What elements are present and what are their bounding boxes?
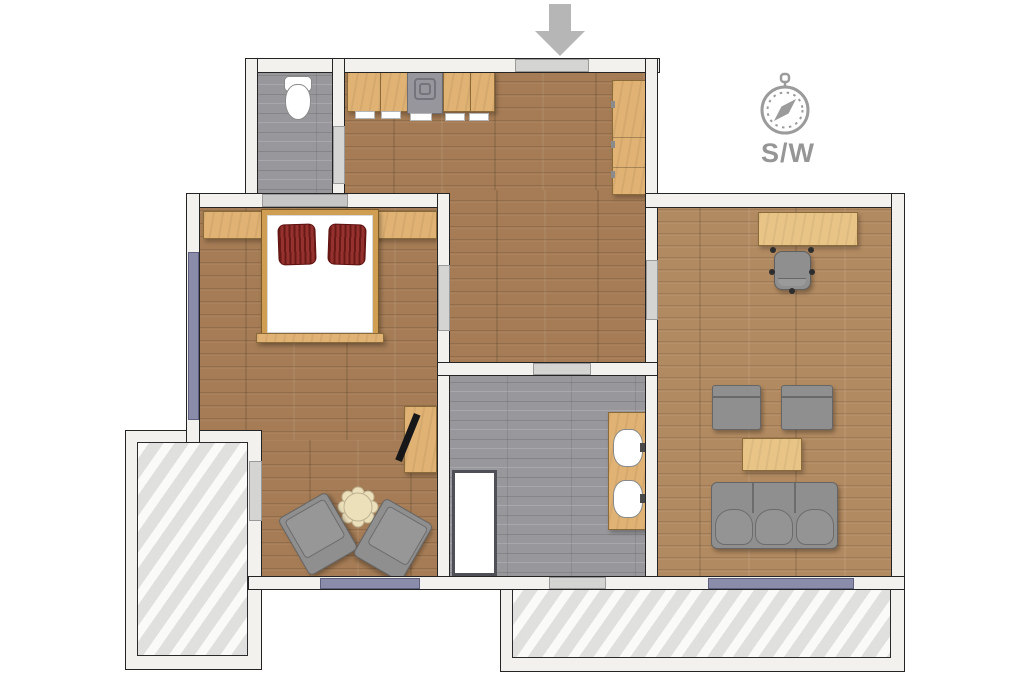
kitchen-counter: [347, 71, 381, 112]
entrance-arrow-icon: [535, 4, 585, 56]
kitchen-counter: [443, 71, 471, 112]
kitchen-counter: [470, 71, 495, 112]
living-room-door: [646, 260, 658, 320]
compass-label: S/W: [748, 138, 828, 169]
terrace-floor: [512, 588, 891, 658]
living-armchair: [712, 385, 761, 430]
compass-icon: [752, 68, 818, 142]
bathroom-door: [533, 363, 591, 375]
shower: [452, 470, 497, 576]
wall-top: [245, 58, 660, 73]
pillow: [277, 223, 316, 265]
balcony-floor: [137, 442, 248, 656]
balcony-door: [249, 461, 262, 521]
kitchen-counter: [380, 71, 408, 112]
sofa-cushion: [796, 509, 834, 545]
counter-handle: [410, 113, 432, 121]
terrace-door: [549, 577, 606, 589]
wc-door: [333, 126, 345, 184]
sofa-cushion: [715, 509, 753, 545]
living-desk: [758, 212, 858, 246]
bathroom-vanity: [608, 412, 647, 530]
sofa-cushion: [755, 509, 793, 545]
living-armchair: [781, 385, 833, 430]
counter-handle: [445, 113, 465, 121]
wall-hall-living: [645, 58, 658, 590]
bedroom-desk: [404, 406, 437, 473]
wall-bedroom-hall: [437, 193, 450, 590]
bedroom-door: [438, 265, 450, 331]
bedroom-side-window: [188, 252, 199, 420]
sink-icon: [613, 429, 643, 467]
living-room-window: [708, 578, 854, 589]
bedroom-bottom-window: [320, 578, 420, 589]
wall-wc-left: [245, 58, 258, 208]
double-bed: [261, 209, 379, 339]
counter-handle: [469, 113, 489, 121]
hall-floor: [443, 190, 652, 370]
wall-lintel: [262, 194, 348, 207]
counter-handle: [381, 111, 401, 119]
tall-cabinet: [612, 80, 647, 195]
sink-icon: [613, 480, 643, 518]
pillow: [327, 223, 366, 265]
coffee-table: [742, 438, 802, 471]
entrance-door: [515, 59, 589, 72]
apartment-floor-plan: S/W: [0, 0, 1030, 693]
stove-icon: [407, 71, 443, 114]
terrace-walls: [500, 576, 905, 672]
sofa: [711, 482, 838, 549]
office-chair: [774, 251, 811, 290]
wall-living-top: [645, 193, 905, 208]
wall-living-right: [891, 193, 905, 590]
balcony-walls: [125, 430, 262, 670]
toilet-icon: [285, 84, 311, 120]
counter-handle: [355, 111, 375, 119]
bed-footboard: [256, 333, 384, 343]
